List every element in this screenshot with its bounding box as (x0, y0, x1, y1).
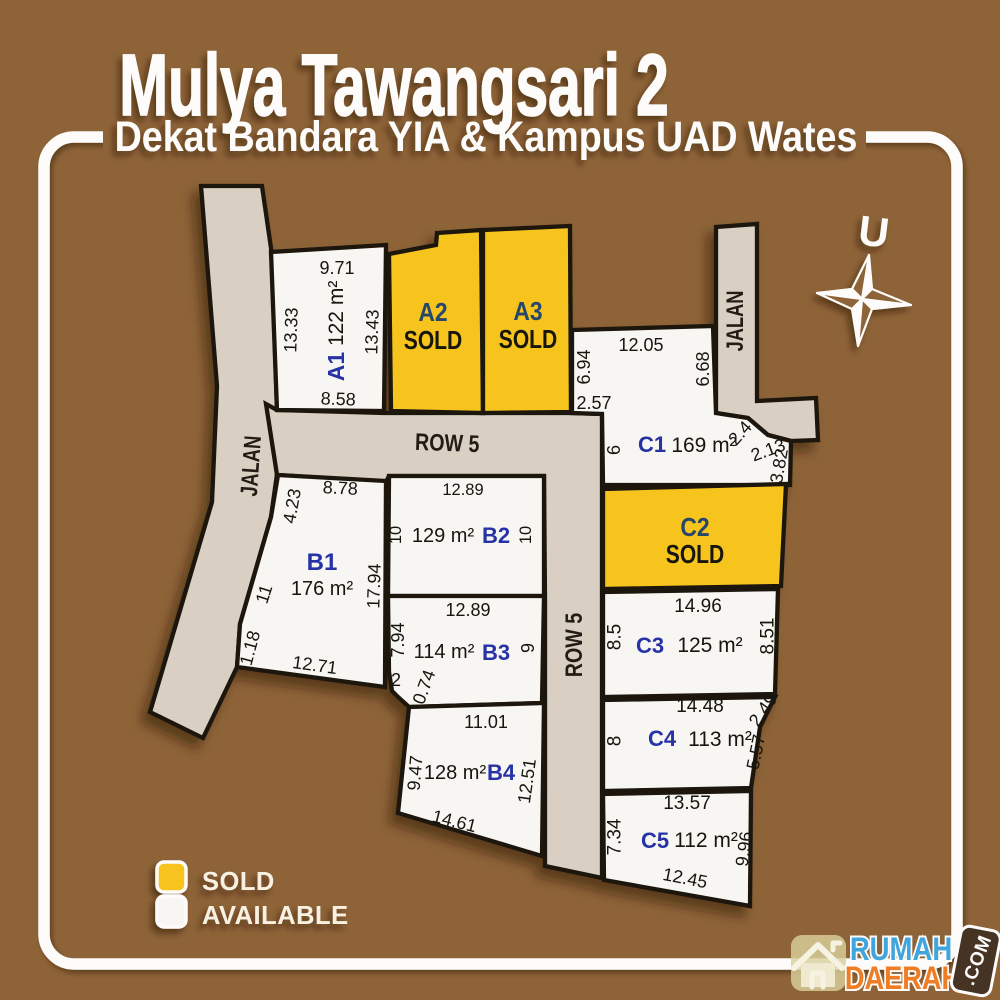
svg-text:176 m²: 176 m² (291, 578, 354, 600)
svg-text:169 m²: 169 m² (671, 434, 736, 457)
svg-text:8.78: 8.78 (322, 477, 358, 499)
svg-text:17.94: 17.94 (363, 563, 385, 609)
svg-text:12.89: 12.89 (445, 600, 490, 620)
svg-text:6: 6 (604, 445, 624, 455)
svg-text:8.58: 8.58 (320, 388, 356, 409)
svg-text:ROW 5: ROW 5 (560, 613, 587, 677)
svg-text:A2: A2 (418, 299, 447, 328)
svg-text:8: 8 (605, 736, 626, 747)
svg-text:13.43: 13.43 (361, 309, 383, 355)
svg-text:DAERAH: DAERAH (845, 961, 961, 997)
svg-text:6.94: 6.94 (574, 349, 594, 384)
svg-text:112 m²: 112 m² (674, 829, 738, 852)
svg-text:7.94: 7.94 (388, 622, 408, 657)
svg-text:9.71: 9.71 (319, 258, 354, 278)
svg-text:13.57: 13.57 (663, 793, 711, 814)
svg-text:8.51: 8.51 (758, 618, 779, 655)
svg-text:10: 10 (387, 526, 405, 544)
svg-text:A1 122 m²: A1 122 m² (323, 281, 349, 382)
svg-text:C1: C1 (638, 432, 666, 457)
svg-text:13.33: 13.33 (280, 307, 302, 353)
svg-text:SOLD: SOLD (202, 868, 275, 896)
svg-text:129 m²: 129 m² (412, 525, 475, 547)
svg-text:12.89: 12.89 (442, 481, 483, 499)
svg-text:C3: C3 (636, 633, 664, 658)
svg-text:14.96: 14.96 (674, 596, 722, 617)
svg-text:JALAN: JALAN (235, 435, 266, 497)
svg-text:C5: C5 (641, 828, 669, 853)
svg-text:C2: C2 (680, 514, 709, 543)
svg-text:Dekat Bandara YIA & Kampus UAD: Dekat Bandara YIA & Kampus UAD Wates (115, 112, 858, 161)
svg-text:B4: B4 (487, 760, 516, 785)
svg-text:JALAN: JALAN (721, 291, 748, 352)
svg-text:SOLD: SOLD (499, 326, 557, 355)
svg-text:B2: B2 (482, 523, 510, 548)
svg-text:ROW 5: ROW 5 (415, 428, 480, 458)
svg-text:10: 10 (517, 526, 535, 544)
svg-text:U: U (856, 206, 892, 256)
svg-text:2.57: 2.57 (576, 393, 611, 413)
svg-text:B3: B3 (482, 640, 510, 665)
svg-text:125 m²: 125 m² (677, 634, 742, 657)
svg-text:14.48: 14.48 (676, 696, 724, 717)
svg-text:8.5: 8.5 (605, 624, 626, 650)
svg-text:11.01: 11.01 (464, 712, 508, 732)
svg-text:B1: B1 (307, 549, 338, 576)
svg-text:113 m²: 113 m² (688, 728, 752, 751)
svg-text:128 m²: 128 m² (424, 762, 487, 784)
svg-text:7.34: 7.34 (605, 818, 626, 855)
svg-text:114 m²: 114 m² (414, 641, 475, 663)
svg-text:6.68: 6.68 (693, 351, 713, 386)
svg-text:9: 9 (518, 643, 538, 653)
svg-text:C4: C4 (648, 726, 677, 751)
svg-text:AVAILABLE: AVAILABLE (202, 902, 349, 930)
svg-text:12.05: 12.05 (618, 335, 663, 355)
svg-text:SOLD: SOLD (404, 327, 462, 356)
svg-text:A3: A3 (513, 298, 542, 327)
svg-text:2: 2 (391, 670, 401, 690)
svg-text:SOLD: SOLD (666, 541, 724, 570)
